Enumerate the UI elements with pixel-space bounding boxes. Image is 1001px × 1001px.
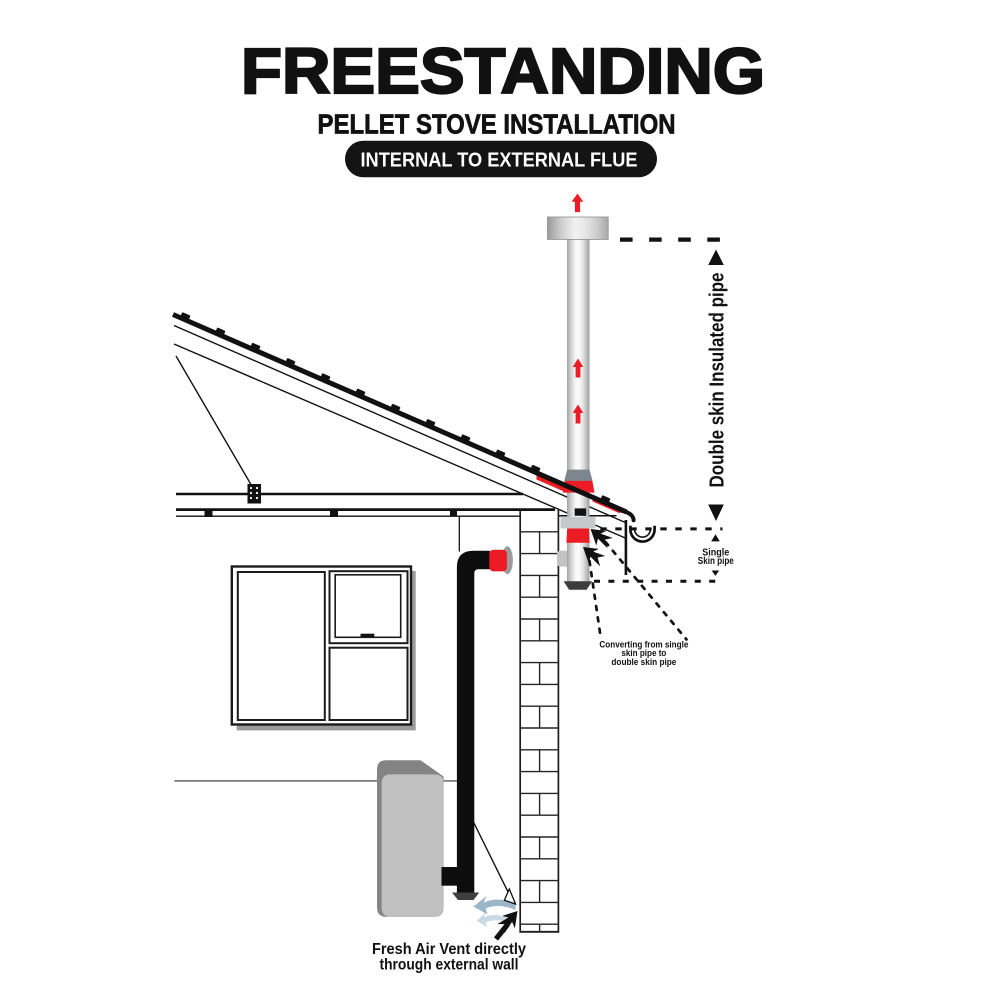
svg-text:Double skin Insulated pipe: Double skin Insulated pipe bbox=[706, 273, 728, 488]
svg-text:FREESTANDING: FREESTANDING bbox=[241, 35, 765, 107]
svg-text:PELLET STOVE INSTALLATION: PELLET STOVE INSTALLATION bbox=[318, 108, 676, 139]
svg-text:through external wall: through external wall bbox=[380, 956, 519, 973]
svg-text:double skin pipe: double skin pipe bbox=[611, 657, 676, 667]
svg-text:INTERNAL TO EXTERNAL FLUE: INTERNAL TO EXTERNAL FLUE bbox=[361, 148, 638, 171]
svg-text:Skin pipe: Skin pipe bbox=[698, 556, 734, 567]
